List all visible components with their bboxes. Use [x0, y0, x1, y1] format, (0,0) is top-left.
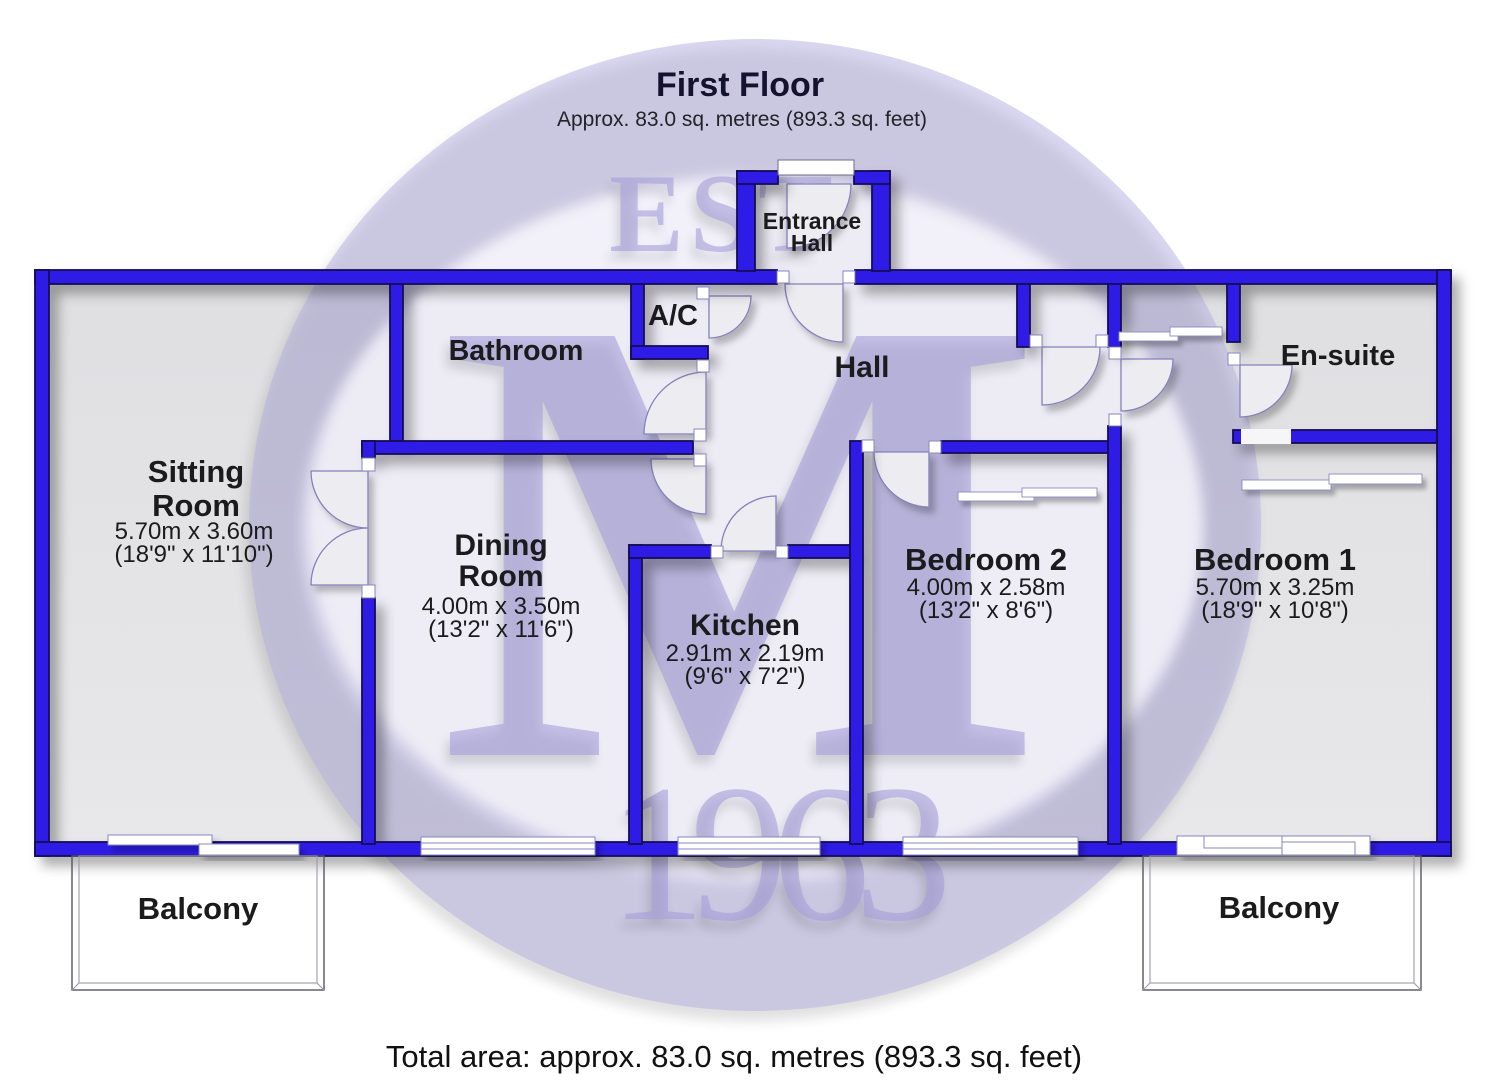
svg-text:First Floor: First Floor: [656, 66, 824, 104]
svg-text:Approx. 83.0 sq. metres (893.3: Approx. 83.0 sq. metres (893.3 sq. feet): [557, 108, 927, 131]
svg-text:Dining: Dining: [454, 529, 547, 562]
svg-text:Bedroom 1: Bedroom 1: [1194, 542, 1356, 577]
svg-text:Balcony: Balcony: [138, 891, 259, 926]
svg-text:(9'6" x 7'2"): (9'6" x 7'2"): [685, 663, 806, 690]
svg-text:(18'9" x 10'8"): (18'9" x 10'8"): [1201, 597, 1349, 624]
svg-text:Bathroom: Bathroom: [449, 335, 584, 367]
svg-text:Balcony: Balcony: [1219, 890, 1340, 925]
svg-text:Bedroom 2: Bedroom 2: [905, 542, 1067, 577]
svg-text:Kitchen: Kitchen: [690, 609, 800, 642]
svg-text:(13'2" x 11'6"): (13'2" x 11'6"): [428, 616, 574, 643]
svg-text:Total area: approx. 83.0 sq. m: Total area: approx. 83.0 sq. metres (893…: [386, 1039, 1082, 1074]
svg-text:En-suite: En-suite: [1281, 340, 1395, 372]
svg-text:Hall: Hall: [791, 230, 833, 256]
svg-text:Hall: Hall: [834, 351, 889, 384]
svg-text:(13'2" x 8'6"): (13'2" x 8'6"): [919, 597, 1053, 624]
svg-text:A/C: A/C: [648, 300, 698, 332]
svg-text:(18'9" x 11'10"): (18'9" x 11'10"): [114, 541, 273, 568]
svg-text:Room: Room: [459, 560, 544, 593]
svg-text:Sitting: Sitting: [148, 454, 244, 489]
